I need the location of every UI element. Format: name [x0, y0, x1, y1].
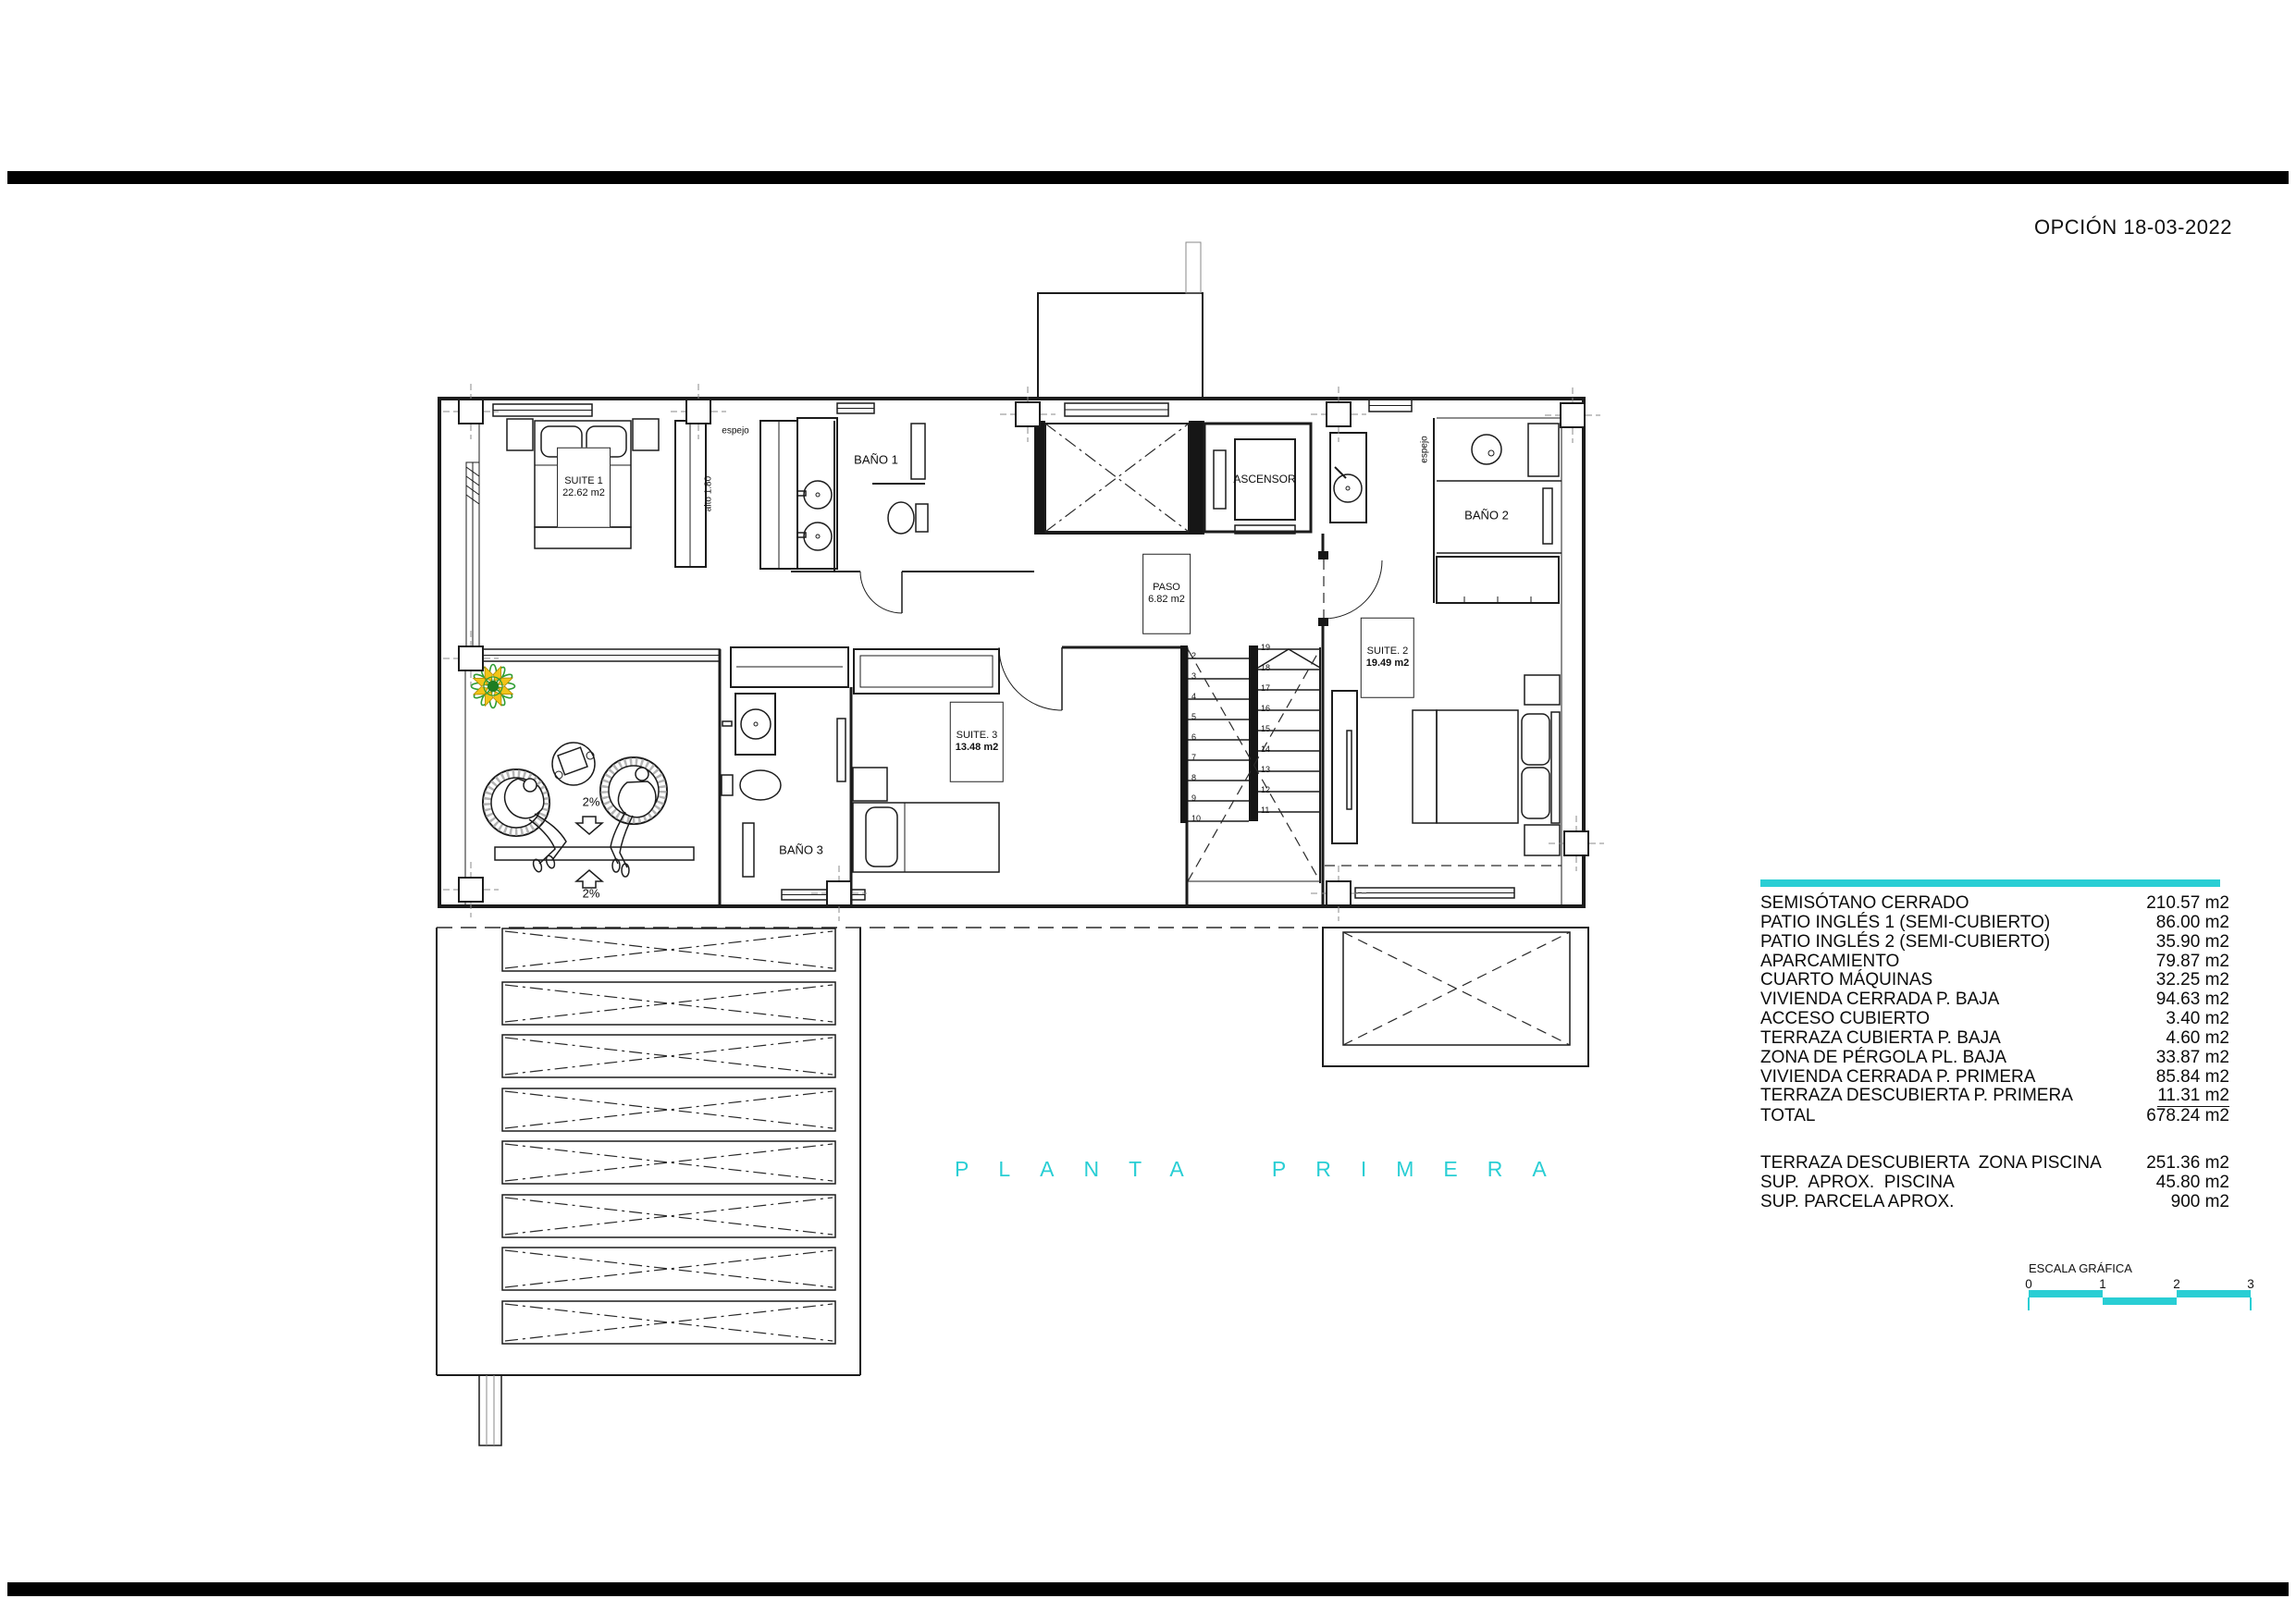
area-row-value: 3.40 m2 [2166, 1010, 2229, 1029]
area-row: SEMISÓTANO CERRADO210.57 m2 [1760, 894, 2229, 914]
annotation-slope-1: 2% [583, 795, 600, 809]
area-table-rows2: TERRAZA DESCUBIERTA ZONA PISCINA251.36 m… [1760, 1154, 2229, 1212]
area-row: TOTAL678.24 m2 [1760, 1107, 2229, 1126]
area-row-label: TOTAL [1760, 1107, 1815, 1126]
pergola-and-patio-below [437, 928, 1588, 1445]
area-row-value: 45.80 m2 [2156, 1174, 2229, 1193]
scale-end-tick [2250, 1297, 2252, 1310]
stair-step-number: 6 [1191, 733, 1196, 742]
scale-segment [2103, 1297, 2177, 1305]
stair-step-number: 10 [1191, 815, 1201, 823]
area-row-value: 85.84 m2 [2156, 1068, 2229, 1088]
area-row-value: 4.60 m2 [2166, 1029, 2229, 1049]
scale-tick-label: 1 [2099, 1277, 2106, 1291]
room-label-bano3: BAÑO 3 [779, 843, 823, 857]
room-label-bano1: BAÑO 1 [854, 453, 898, 467]
area-row-value: 94.63 m2 [2156, 990, 2229, 1010]
scale-end-tick [2028, 1297, 2030, 1310]
bath2-fixtures [1330, 424, 1559, 603]
area-row-label: TERRAZA CUBIERTA P. BAJA [1760, 1029, 2001, 1049]
scale-segment [2177, 1290, 2251, 1297]
stair-step-number: 4 [1191, 693, 1196, 701]
area-row-value: 86.00 m2 [2156, 914, 2229, 933]
plan-title: PLANTA PRIMERA [955, 1157, 1576, 1182]
bath3-fixtures [722, 694, 781, 877]
annotation-espejo: espejo [722, 426, 748, 436]
area-row-value: 900 m2 [2171, 1193, 2229, 1212]
area-row: SUP. APROX. PISCINA45.80 m2 [1760, 1174, 2229, 1193]
graphic-scale: ESCALA GRÁFICA 0123 [2022, 1261, 2263, 1317]
area-row: VIVIENDA CERRADA P. BAJA94.63 m2 [1760, 990, 2229, 1010]
room-label-suite2: SUITE. 219.49 m2 [1361, 618, 1414, 698]
room-label-ascensor: ASCENSOR [1233, 473, 1295, 486]
area-row-label: SUP. APROX. PISCINA [1760, 1174, 1955, 1193]
area-row-label: TERRAZA DESCUBIERTA P. PRIMERA [1760, 1087, 2073, 1107]
area-row-value: 251.36 m2 [2146, 1154, 2229, 1174]
area-table-rows: SEMISÓTANO CERRADO210.57 m2PATIO INGLÉS … [1760, 894, 2229, 1126]
area-row: CUARTO MÁQUINAS32.25 m2 [1760, 971, 2229, 990]
stair-step-number: 7 [1191, 754, 1196, 762]
stair-step-number: 18 [1261, 664, 1270, 672]
area-row: ACCESO CUBIERTO3.40 m2 [1760, 1010, 2229, 1029]
area-row-label: SEMISÓTANO CERRADO [1760, 894, 1969, 914]
suite2-bed [1325, 675, 1562, 866]
annotation-slope-2: 2% [583, 887, 600, 901]
stair-step-number: 17 [1261, 684, 1270, 693]
area-row-label: SUP. PARCELA APROX. [1760, 1193, 1954, 1212]
structural-pillars [443, 384, 1604, 921]
scale-segment [2029, 1290, 2103, 1297]
slope-arrow-up [576, 870, 602, 888]
area-row: PATIO INGLÉS 1 (SEMI-CUBIERTO)86.00 m2 [1760, 914, 2229, 933]
floor-plan-drawing [0, 0, 2296, 1623]
terrace-furniture [483, 743, 694, 888]
area-row-label: VIVIENDA CERRADA P. BAJA [1760, 990, 1999, 1010]
area-row-value: 33.87 m2 [2156, 1049, 2229, 1068]
stair-step-number: 19 [1261, 644, 1270, 652]
area-row-value: 678.24 m2 [2146, 1107, 2229, 1126]
stair-step-number: 2 [1191, 652, 1196, 660]
patio-void [1045, 424, 1189, 532]
area-row-label: VIVIENDA CERRADA P. PRIMERA [1760, 1068, 2035, 1088]
area-row-value: 11.31 m2 [2157, 1087, 2229, 1107]
stair-step-number: 5 [1191, 713, 1196, 721]
scale-tick-label: 2 [2173, 1277, 2180, 1291]
area-row: TERRAZA CUBIERTA P. BAJA4.60 m2 [1760, 1029, 2229, 1049]
area-row-label: CUARTO MÁQUINAS [1760, 971, 1932, 990]
stair-step-number: 16 [1261, 705, 1270, 713]
area-row-label: APARCAMIENTO [1760, 953, 1899, 972]
area-row-value: 35.90 m2 [2156, 933, 2229, 953]
stair-step-number: 12 [1261, 786, 1270, 794]
scale-tick-label: 3 [2247, 1277, 2254, 1291]
annotation-alto: alto 1.80 [704, 476, 714, 511]
area-row: VIVIENDA CERRADA P. PRIMERA85.84 m2 [1760, 1068, 2229, 1088]
annotation-espejo-2: espejo [1420, 436, 1430, 462]
drawing-sheet: OPCIÓN 18-03-2022 [0, 0, 2296, 1623]
room-label-suite1: SUITE 122.62 m2 [557, 448, 611, 528]
area-row-label: TERRAZA DESCUBIERTA ZONA PISCINA [1760, 1154, 2102, 1174]
stair-step-number: 13 [1261, 766, 1270, 774]
area-row-label: ZONA DE PÉRGOLA PL. BAJA [1760, 1049, 2006, 1068]
area-row-label: ACCESO CUBIERTO [1760, 1010, 1930, 1029]
area-row: ZONA DE PÉRGOLA PL. BAJA33.87 m2 [1760, 1049, 2229, 1068]
scale-label: ESCALA GRÁFICA [2029, 1261, 2132, 1275]
stair-step-number: 14 [1261, 745, 1270, 754]
room-label-paso: PASO6.82 m2 [1142, 554, 1191, 634]
area-row: SUP. PARCELA APROX.900 m2 [1760, 1193, 2229, 1212]
slope-arrow-down [576, 817, 602, 834]
area-row: PATIO INGLÉS 2 (SEMI-CUBIERTO)35.90 m2 [1760, 933, 2229, 953]
room-label-bano2: BAÑO 2 [1464, 509, 1509, 523]
stair-step-number: 11 [1261, 806, 1269, 815]
stair-step-number: 9 [1191, 794, 1196, 803]
area-row-value: 32.25 m2 [2156, 971, 2229, 990]
stair-step-number: 15 [1261, 725, 1270, 733]
scale-tick-label: 0 [2025, 1277, 2032, 1291]
area-row: TERRAZA DESCUBIERTA P. PRIMERA11.31 m2 [1760, 1087, 2229, 1107]
area-row-label: PATIO INGLÉS 1 (SEMI-CUBIERTO) [1760, 914, 2050, 933]
area-row: TERRAZA DESCUBIERTA ZONA PISCINA251.36 m… [1760, 1154, 2229, 1174]
area-row: APARCAMIENTO79.87 m2 [1760, 953, 2229, 972]
area-row-value: 79.87 m2 [2156, 953, 2229, 972]
area-row-label: PATIO INGLÉS 2 (SEMI-CUBIERTO) [1760, 933, 2050, 953]
table-accent-bar [1760, 879, 2220, 887]
stair-step-number: 3 [1191, 672, 1196, 681]
area-table: SEMISÓTANO CERRADO210.57 m2PATIO INGLÉS … [1760, 879, 2229, 1212]
room-label-suite3: SUITE. 313.48 m2 [950, 702, 1004, 782]
doors [860, 551, 1382, 710]
stair-step-number: 8 [1191, 774, 1196, 782]
area-row-value: 210.57 m2 [2146, 894, 2229, 914]
